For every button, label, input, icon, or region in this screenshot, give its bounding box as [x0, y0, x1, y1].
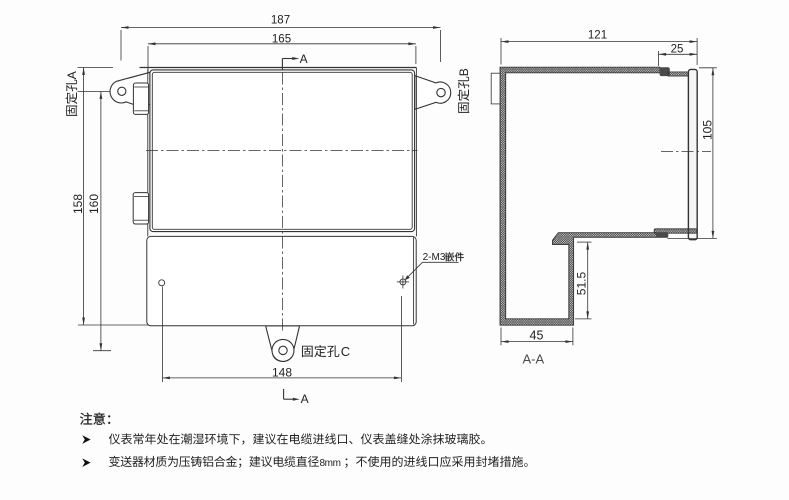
svg-text:A: A	[300, 52, 308, 66]
svg-text:148: 148	[272, 366, 292, 380]
svg-text:A-A: A-A	[523, 352, 545, 367]
svg-text:25: 25	[671, 44, 684, 56]
svg-text:51.5: 51.5	[575, 271, 589, 295]
svg-text:A: A	[65, 71, 79, 79]
svg-text:B: B	[457, 68, 471, 76]
svg-text:8mm: 8mm	[320, 458, 341, 469]
svg-text:C: C	[341, 344, 350, 359]
svg-text:A: A	[301, 392, 309, 406]
svg-text:158: 158	[71, 194, 85, 214]
svg-text:187: 187	[271, 15, 290, 27]
svg-text:2-M3: 2-M3	[423, 252, 446, 263]
svg-text:165: 165	[272, 34, 291, 46]
svg-text:160: 160	[87, 194, 101, 214]
svg-text:45: 45	[530, 329, 544, 343]
svg-text:105: 105	[700, 120, 714, 140]
svg-text:121: 121	[588, 29, 607, 41]
